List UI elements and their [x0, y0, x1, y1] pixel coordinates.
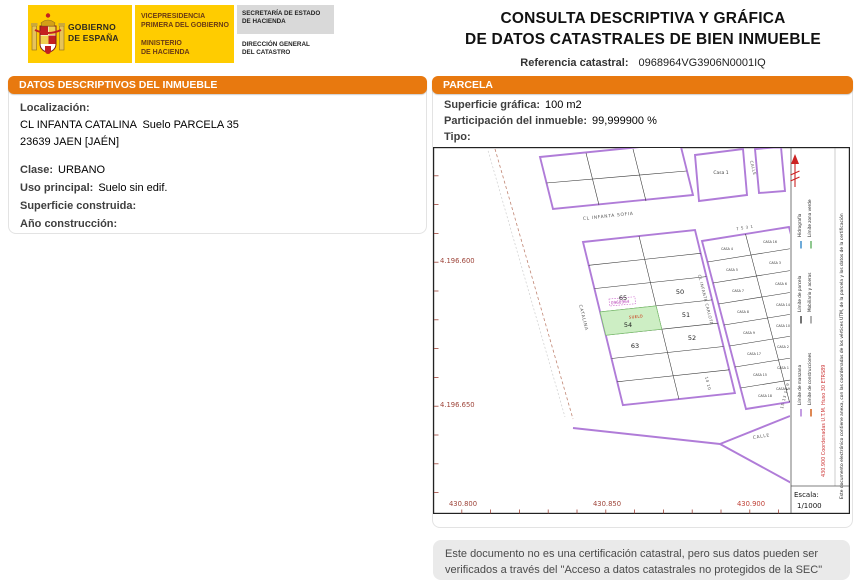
- y-axis-label-1: 4.196.600: [440, 257, 475, 265]
- secretaria-line2: DE HACIENDA: [242, 18, 320, 26]
- parcel-number-50: 50: [676, 288, 684, 296]
- casa-label: CASA 1: [777, 366, 789, 370]
- vicepresidencia-line2: PRIMERA DEL GOBIERNO: [141, 21, 229, 30]
- vicepresidencia-line1: VICEPRESIDENCIA: [141, 12, 229, 21]
- casa-label: CASA 10: [776, 324, 790, 328]
- parcel-number-54: 54: [624, 321, 632, 329]
- casa-label: CASA 15: [753, 373, 767, 377]
- casa-label: CASA 2: [777, 345, 789, 349]
- escala-label: Escala:: [794, 491, 819, 499]
- electronic-doc-note: Este documento electrónico contiene anex…: [838, 213, 845, 499]
- ministerio-box: VICEPRESIDENCIA PRIMERA DEL GOBIERNO MIN…: [135, 5, 234, 63]
- gobierno-line1: GOBIERNO: [68, 22, 119, 33]
- legend-label-parcela: Límite de parcela: [797, 275, 802, 312]
- ministerio-line1: MINISTERIO: [141, 39, 190, 48]
- ministerio-line2: DE HACIENDA: [141, 48, 190, 57]
- superficie-grafica-value: 100 m2: [545, 99, 582, 111]
- clase-value: URBANO: [58, 164, 105, 176]
- casa-label: CASA 3: [769, 261, 781, 265]
- casa-label: CASA 17: [747, 352, 761, 356]
- participacion-label: Participación del inmueble:: [444, 115, 587, 127]
- casa-label: CASA 16: [763, 240, 777, 244]
- casa-label: CASA 4: [721, 247, 733, 251]
- government-logo: GOBIERNO DE ESPAÑA VICEPRESIDENCIA PRIME…: [28, 5, 338, 65]
- casa-label: CASA 5: [726, 268, 738, 272]
- casa-label: CASA 6: [775, 282, 787, 286]
- legend-label-hidrografia: Hidrografía: [797, 213, 802, 237]
- parcela-panel: PARCELA Superficie gráfica:100 m2 Partic…: [432, 76, 853, 528]
- datos-descriptivos-header: DATOS DESCRIPTIVOS DEL INMUEBLE: [8, 76, 427, 94]
- y-axis-label-2: 4.196.650: [440, 401, 475, 409]
- direccion-line1: DIRECCIÓN GENERAL: [242, 41, 310, 49]
- gobierno-line2: DE ESPAÑA: [68, 33, 119, 44]
- casa-label: CASA 19: [776, 387, 790, 391]
- referencia-catastral-value: 0968964VG3906N0001IQ: [639, 57, 766, 69]
- x-axis-label-3: 430.900: [737, 500, 765, 508]
- parcela-header: PARCELA: [432, 76, 853, 94]
- uso-principal-label: Uso principal:: [20, 182, 93, 194]
- gobierno-box: GOBIERNO DE ESPAÑA: [28, 5, 132, 63]
- participacion-value: 99,999900 %: [592, 115, 657, 127]
- datos-descriptivos-panel: DATOS DESCRIPTIVOS DEL INMUEBLE Localiza…: [8, 76, 427, 234]
- legend-label-zonaverde: Límite zona verde: [807, 199, 812, 237]
- localizacion-label: Localización:: [20, 102, 90, 114]
- casa-label: CASA 8: [737, 310, 749, 314]
- tipo-label: Tipo:: [444, 131, 471, 143]
- casa1-label: Casa 1: [713, 170, 728, 176]
- casa-label: CASA 9: [743, 331, 755, 335]
- casa-label: CASA 14: [776, 303, 790, 307]
- uso-principal-value: Suelo sin edif.: [98, 182, 167, 194]
- direccion-line2: DEL CATASTRO: [242, 49, 310, 57]
- page-title-line2: DE DATOS CATASTRALES DE BIEN INMUEBLE: [430, 29, 856, 50]
- page-title-line1: CONSULTA DESCRIPTIVA Y GRÁFICA: [430, 8, 856, 29]
- referencia-catastral-label: Referencia catastral:: [520, 57, 628, 69]
- legend-label-manzana: Límite de manzana: [797, 364, 802, 405]
- small-block: [755, 147, 785, 193]
- coords-note: 430.900 Coordenadas U.T.M. Huso 30 ETRS8…: [821, 365, 827, 477]
- casa-label: CASA 7: [732, 289, 744, 293]
- x-axis-label-2: 430.850: [593, 500, 621, 508]
- parcel-number-52: 52: [688, 334, 696, 342]
- parcel-number-51: 51: [682, 311, 690, 319]
- document-title-block: CONSULTA DESCRIPTIVA Y GRÁFICA DE DATOS …: [430, 8, 856, 69]
- secretaria-box: SECRETARÍA DE ESTADO DE HACIENDA: [237, 5, 334, 34]
- clase-label: Clase:: [20, 164, 53, 176]
- casa-label: CASA 18: [758, 394, 772, 398]
- legend-label-construcciones: Límite de construcciones: [807, 353, 812, 405]
- localizacion-municipio: 23639 JAEN [JAÉN]: [20, 136, 119, 148]
- x-axis-label-1: 430.800: [449, 500, 477, 508]
- legend-label-mobiliario: Mobiliario y aceras: [807, 273, 812, 312]
- localizacion-direccion: CL INFANTA CATALINA Suelo PARCELA 35: [20, 119, 239, 131]
- parcel-number-65: 65: [619, 294, 627, 302]
- referencia-catastral-row: Referencia catastral: 0968964VG3906N0001…: [430, 57, 856, 69]
- superficie-construida-label: Superficie construida:: [20, 200, 136, 212]
- parcel-number-63: 63: [631, 342, 639, 350]
- footer-disclaimer: Este documento no es una certificación c…: [433, 540, 850, 580]
- secretaria-line1: SECRETARÍA DE ESTADO: [242, 10, 320, 18]
- anio-construccion-label: Año construcción:: [20, 218, 117, 230]
- spain-coat-of-arms-icon: [31, 10, 65, 58]
- cadastral-map: 4.196.600 4.196.650 430.800 430.850 430.…: [433, 147, 850, 514]
- superficie-grafica-label: Superficie gráfica:: [444, 99, 540, 111]
- escala-value: 1/1000: [797, 502, 822, 510]
